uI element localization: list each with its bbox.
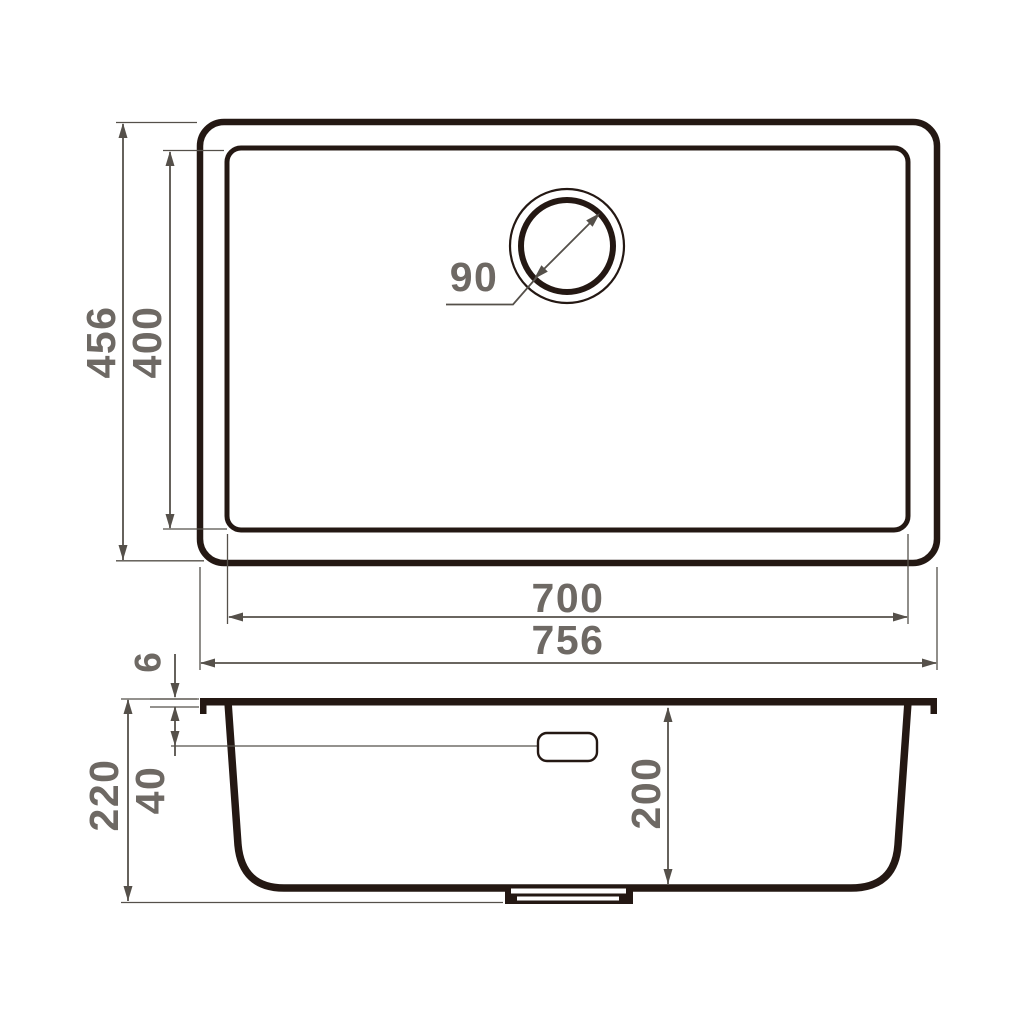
bowl-depth-label: 400 bbox=[124, 306, 170, 379]
total-height-label: 220 bbox=[81, 759, 127, 832]
outer-width-label: 756 bbox=[532, 617, 605, 663]
drain-fitting bbox=[505, 886, 633, 904]
drawing-background bbox=[0, 0, 1024, 1024]
bowl-width-label: 700 bbox=[532, 575, 605, 621]
drain-diameter-label: 90 bbox=[450, 254, 499, 300]
overflow-offset-label: 40 bbox=[127, 766, 173, 815]
drain-fitting-gap-lower bbox=[517, 897, 619, 901]
section-rim-right-lip bbox=[931, 698, 938, 714]
drain-fitting-gap-upper bbox=[511, 889, 626, 894]
section-rim-left-lip bbox=[200, 698, 207, 714]
rim-thickness-label: 6 bbox=[128, 651, 169, 673]
sink-technical-drawing: 90 456 400 700 bbox=[0, 0, 1024, 1024]
outer-depth-label: 456 bbox=[78, 306, 124, 379]
section-rim bbox=[200, 698, 937, 706]
bowl-inner-depth-label: 200 bbox=[623, 757, 669, 830]
